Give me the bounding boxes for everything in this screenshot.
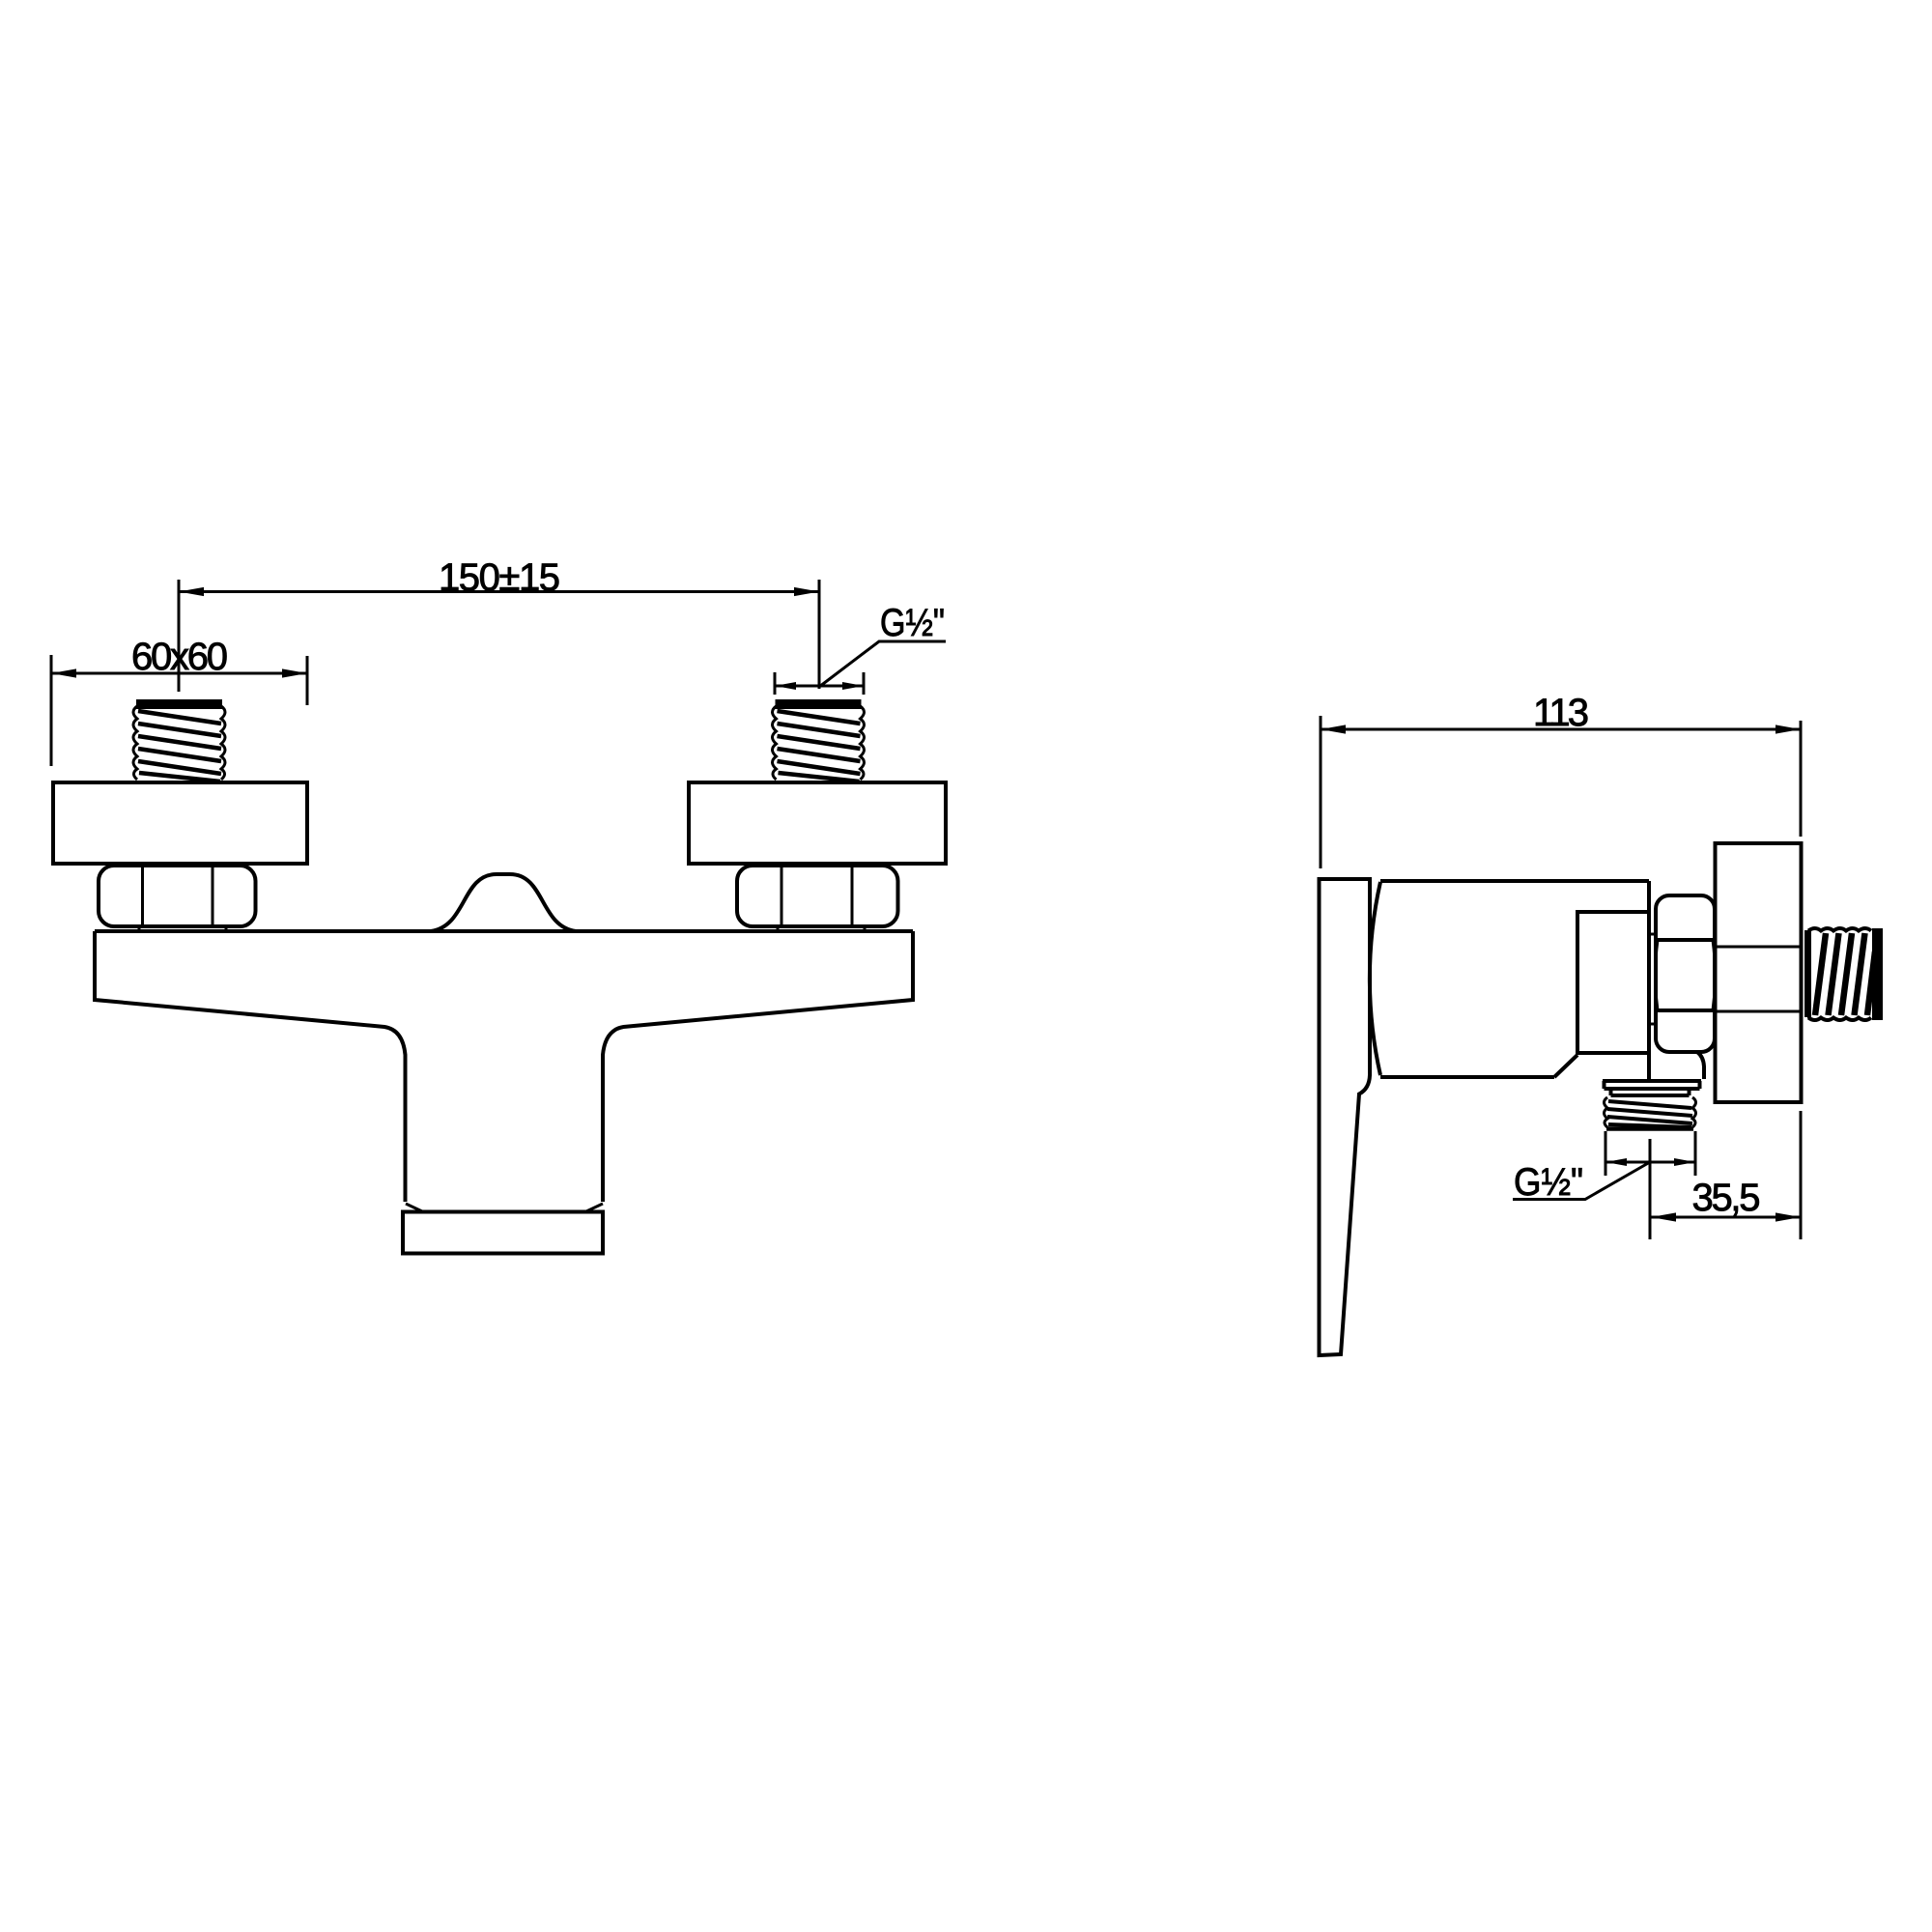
svg-text:60x60: 60x60 (131, 636, 228, 678)
svg-text:35,5: 35,5 (1692, 1177, 1761, 1219)
svg-text:113: 113 (1533, 692, 1589, 734)
svg-text:G½": G½" (880, 602, 945, 644)
svg-text:G½": G½" (1514, 1161, 1583, 1204)
